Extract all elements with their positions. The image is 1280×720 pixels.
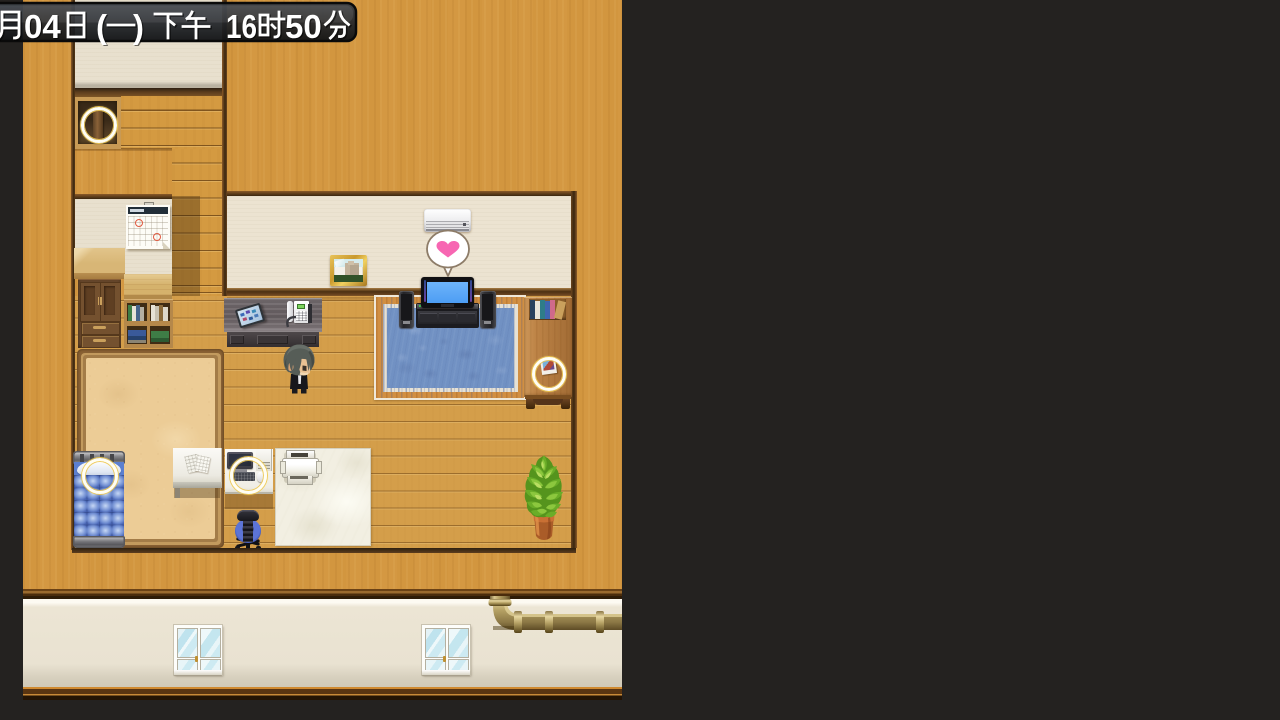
svg-text:(: ( <box>96 8 107 45</box>
svg-text:50: 50 <box>285 8 322 45</box>
svg-text:16: 16 <box>226 8 257 45</box>
svg-text:04: 04 <box>24 8 61 45</box>
